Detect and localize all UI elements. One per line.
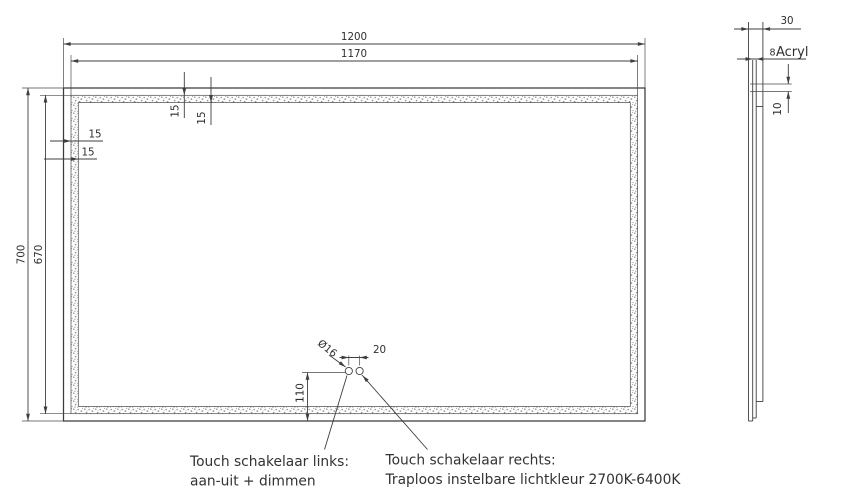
- dim-depth-label: 30: [780, 15, 793, 27]
- side-view: 30 8 Acryl 10: [734, 15, 808, 421]
- dim-switch-spacing-label: 20: [373, 344, 386, 356]
- drawing-canvas: 1200 1170 700 670 15 15: [0, 0, 841, 500]
- acryl-material-label: Acryl: [776, 45, 808, 60]
- annotation-notes: Touch schakelaar links: aan-uit + dimmen…: [189, 453, 681, 490]
- dim-height-inner-label: 670: [33, 245, 45, 265]
- led-band-inner-rect: [78, 103, 630, 407]
- dim-height-inner: 670: [33, 95, 71, 413]
- dim-width-outer-label: 1200: [341, 31, 367, 43]
- note-switch-left-title: Touch schakelaar links:: [189, 454, 349, 470]
- dim-border-left-width-label: 15: [81, 147, 94, 159]
- technical-drawing-mirror: 1200 1170 700 670 15 15: [0, 0, 841, 500]
- note-switch-right-desc: Traploos instelbare lichtkleur 2700K-640…: [385, 472, 682, 488]
- dim-acryl-thickness-label: 8: [770, 48, 776, 59]
- dim-switch-height-label: 110: [295, 383, 307, 403]
- note-switch-right-title: Touch schakelaar rechts:: [385, 453, 556, 469]
- dim-height-outer-label: 700: [16, 245, 28, 265]
- dim-led-offset-label: 10: [772, 102, 784, 115]
- dim-border-left-offset-label: 15: [88, 129, 101, 141]
- dim-border-top-width-label: 15: [196, 111, 208, 124]
- note-switch-left-desc: aan-uit + dimmen: [190, 474, 316, 490]
- front-view: [64, 88, 646, 421]
- dim-width-inner-label: 1170: [341, 48, 367, 60]
- dim-border-top-offset-label: 15: [170, 104, 182, 117]
